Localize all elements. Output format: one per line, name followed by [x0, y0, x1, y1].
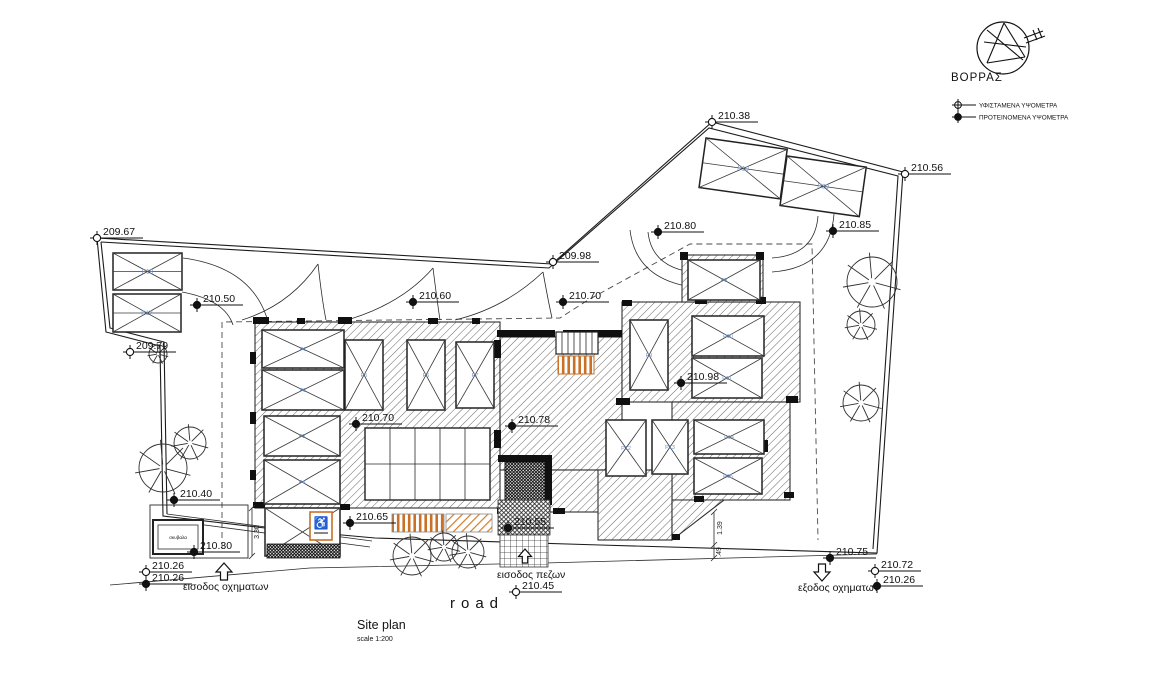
parking-stall-exterior: P18: [113, 253, 182, 290]
dimension-value: 3.30: [254, 525, 261, 539]
vehicle-entrance-label: εισοδος οχηματων: [183, 581, 268, 593]
elevation-value: 209.67: [103, 226, 135, 238]
parking-stall-label: P17: [141, 310, 153, 317]
elevation-value: 210.26: [152, 572, 184, 584]
staircase: [556, 332, 598, 374]
dimension-value: 1.39: [717, 521, 724, 535]
parking-stall: P6: [407, 340, 445, 410]
elevation-value: 210.56: [911, 162, 943, 174]
parking-stall: P5: [345, 340, 383, 410]
parking-stall-label: P6: [423, 373, 430, 379]
parking-stall: P2: [262, 370, 344, 410]
ramps: [392, 514, 492, 532]
elevation-value: 210.85: [839, 219, 871, 231]
parking-stall: P9: [630, 320, 668, 390]
road-label: road: [450, 595, 504, 612]
elevation-value: 210.70: [569, 290, 601, 302]
elevation-value: 210.38: [718, 110, 750, 122]
parking-stall-label: P13: [665, 445, 675, 451]
elevation-value: 210.26: [883, 574, 915, 586]
drawing-sheet: P1P2P3P4P5P6P7P8P9P10P11P12P13P14P15P18P…: [0, 0, 1159, 699]
storage-rooms: [365, 428, 490, 500]
parking-stall: P15: [694, 458, 762, 494]
elevation-value: 210.30: [200, 540, 232, 552]
elevation-value: 210.98: [687, 371, 719, 383]
parking-stall-label: P2: [300, 388, 307, 394]
parking-stall-exterior: P17: [113, 294, 181, 332]
wheelchair-icon: ♿: [314, 516, 329, 530]
dimension-text: 3.30: [254, 525, 261, 539]
parking-stall-exterior: P20: [780, 156, 866, 217]
parking-stall: P7: [456, 342, 494, 408]
elevation-value: 210.40: [180, 488, 212, 500]
site-plan: P1P2P3P4P5P6P7P8P9P10P11P12P13P14P15P18P…: [0, 0, 1159, 699]
elevation-value: 210.70: [362, 412, 394, 424]
parking-stall-label: P1: [300, 347, 307, 353]
plan-title: Site plan: [357, 618, 406, 632]
parking-stall: P14: [694, 420, 764, 454]
elevation-value: 210.80: [664, 220, 696, 232]
parking-stall-label: P4: [299, 480, 306, 486]
parking-stall-label: P18: [142, 269, 154, 276]
parking-stall-label: P15: [723, 474, 733, 480]
parking-stall-label: P11: [722, 376, 731, 382]
compass-label: ΒΟΡΡΑΣ: [951, 72, 1003, 84]
parking-stall-label: P14: [724, 435, 734, 441]
elevation-value: 210.26: [152, 560, 184, 572]
elevation-value: 209.79: [136, 340, 168, 352]
plan-scale: scale 1:200: [357, 636, 393, 643]
elevation-value: 210.75: [836, 546, 868, 558]
legend-existing-label: ΥΦΙΣΤΑΜΕΝΑ ΥΨΟΜΕΤΡΑ: [979, 103, 1058, 110]
legend-proposed-label: ΠΡΟΤΕΙΝΟΜΕΝΑ ΥΨΟΜΕΤΡΑ: [979, 115, 1069, 122]
parking-stall-label: P5: [361, 373, 368, 379]
parking-stall-label: P3: [299, 434, 306, 440]
pedestrian-entrance-label: εισοδος πεζων: [497, 569, 565, 581]
parking-stall: P10: [692, 316, 764, 356]
parking-stall: P13: [652, 420, 688, 474]
parking-stall-label: P8: [721, 278, 728, 284]
elevation-value: 210.45: [522, 580, 554, 592]
parking-stall-label: P7: [472, 373, 479, 379]
elevation-value: 210.50: [203, 293, 235, 305]
parking-stall: P3: [264, 416, 340, 456]
vehicle-exit-label: εξοδος οχηματων: [798, 582, 879, 594]
elevation-value: 209.98: [559, 250, 591, 262]
parking-stall-label: P9: [646, 353, 653, 359]
parking-stall: P4: [264, 460, 340, 504]
dimension-text: 1.39: [717, 521, 724, 535]
parking-stall-label: P12: [621, 446, 631, 452]
elevation-value: 210.60: [419, 290, 451, 302]
parking-stall-exterior: P19: [699, 138, 787, 199]
elevation-value: 210.65: [356, 511, 388, 523]
elevation-value: 210.55: [514, 516, 546, 528]
bin-label: σκυβαλα: [169, 535, 187, 540]
parking-stall: P12: [606, 420, 646, 476]
building-core: [498, 455, 552, 505]
accessible-parking: ♿: [265, 508, 340, 558]
elevation-value: 210.78: [518, 414, 550, 426]
parking-stall: P1: [262, 330, 344, 368]
elevation-value: 210.72: [881, 559, 913, 571]
parking-stall-label: P10: [723, 334, 733, 340]
parking-stall: P8: [688, 260, 760, 300]
